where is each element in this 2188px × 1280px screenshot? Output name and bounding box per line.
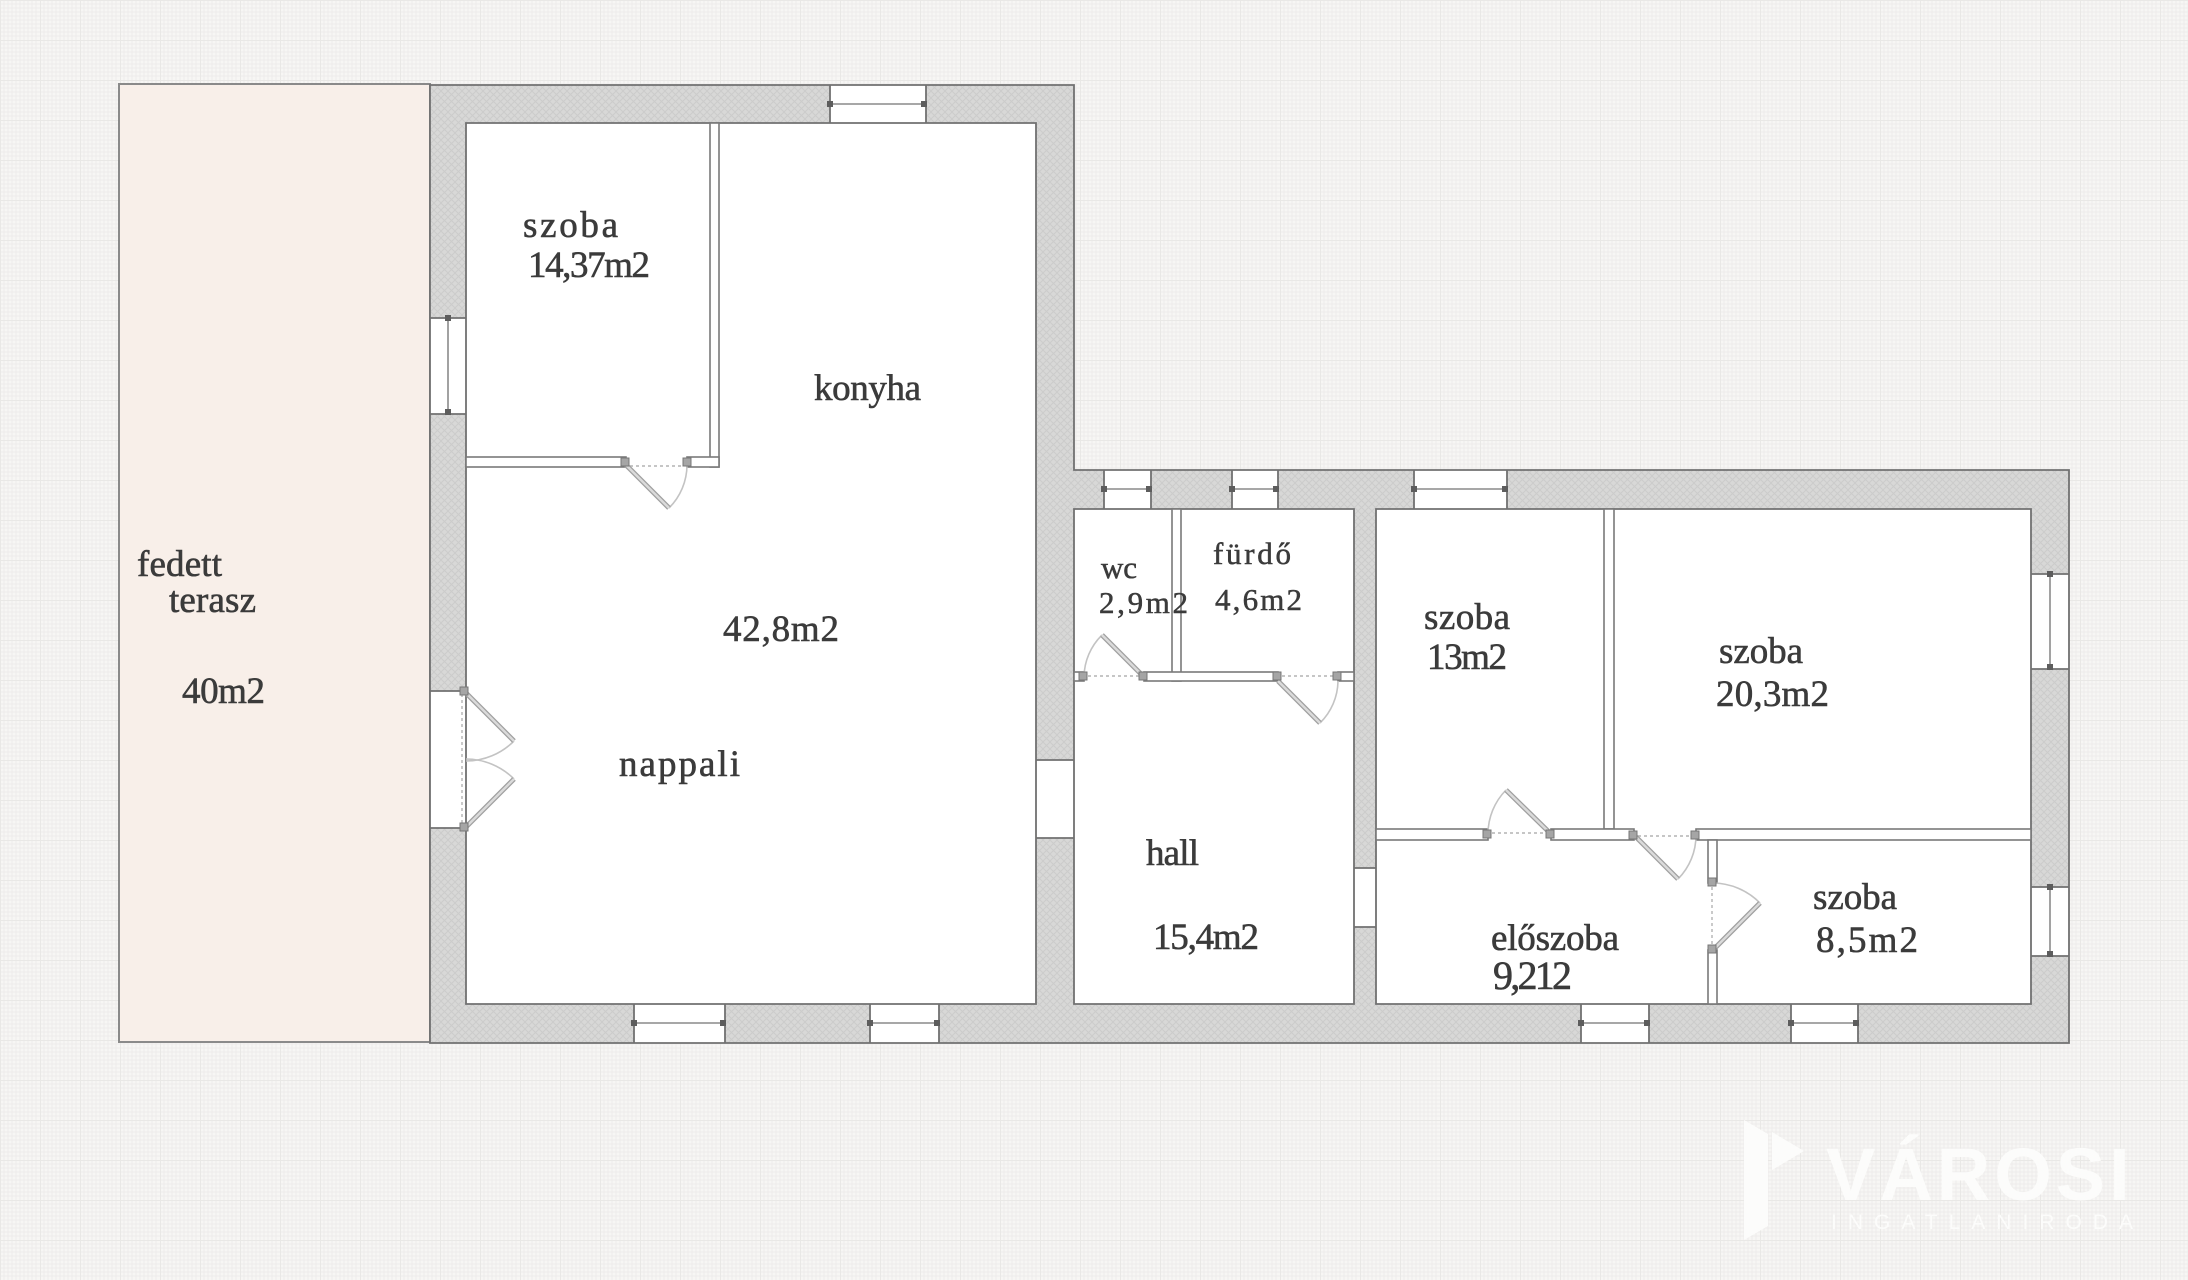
svg-text:szoba: szoba	[523, 205, 618, 246]
svg-text:hall: hall	[1146, 833, 1199, 874]
svg-text:9,212: 9,212	[1493, 953, 1572, 998]
svg-text:nappali: nappali	[619, 744, 740, 785]
svg-text:13m2: 13m2	[1427, 637, 1507, 678]
svg-text:15,4m2: 15,4m2	[1153, 917, 1259, 958]
svg-text:szoba: szoba	[1719, 631, 1803, 672]
svg-text:terasz: terasz	[169, 580, 256, 621]
svg-text:INGATLANIRODA: INGATLANIRODA	[1831, 1211, 2144, 1234]
svg-text:VÁROSI: VÁROSI	[1826, 1133, 2134, 1216]
svg-text:14,37m2: 14,37m2	[528, 245, 650, 286]
svg-text:20,3m2: 20,3m2	[1716, 674, 1829, 715]
svg-text:fedett: fedett	[137, 544, 223, 585]
svg-text:szoba: szoba	[1424, 597, 1510, 638]
svg-text:42,8m2: 42,8m2	[723, 609, 839, 650]
svg-text:wc: wc	[1101, 550, 1137, 585]
svg-text:konyha: konyha	[814, 368, 921, 409]
svg-text:40m2: 40m2	[182, 671, 265, 712]
svg-text:szoba: szoba	[1813, 877, 1897, 918]
